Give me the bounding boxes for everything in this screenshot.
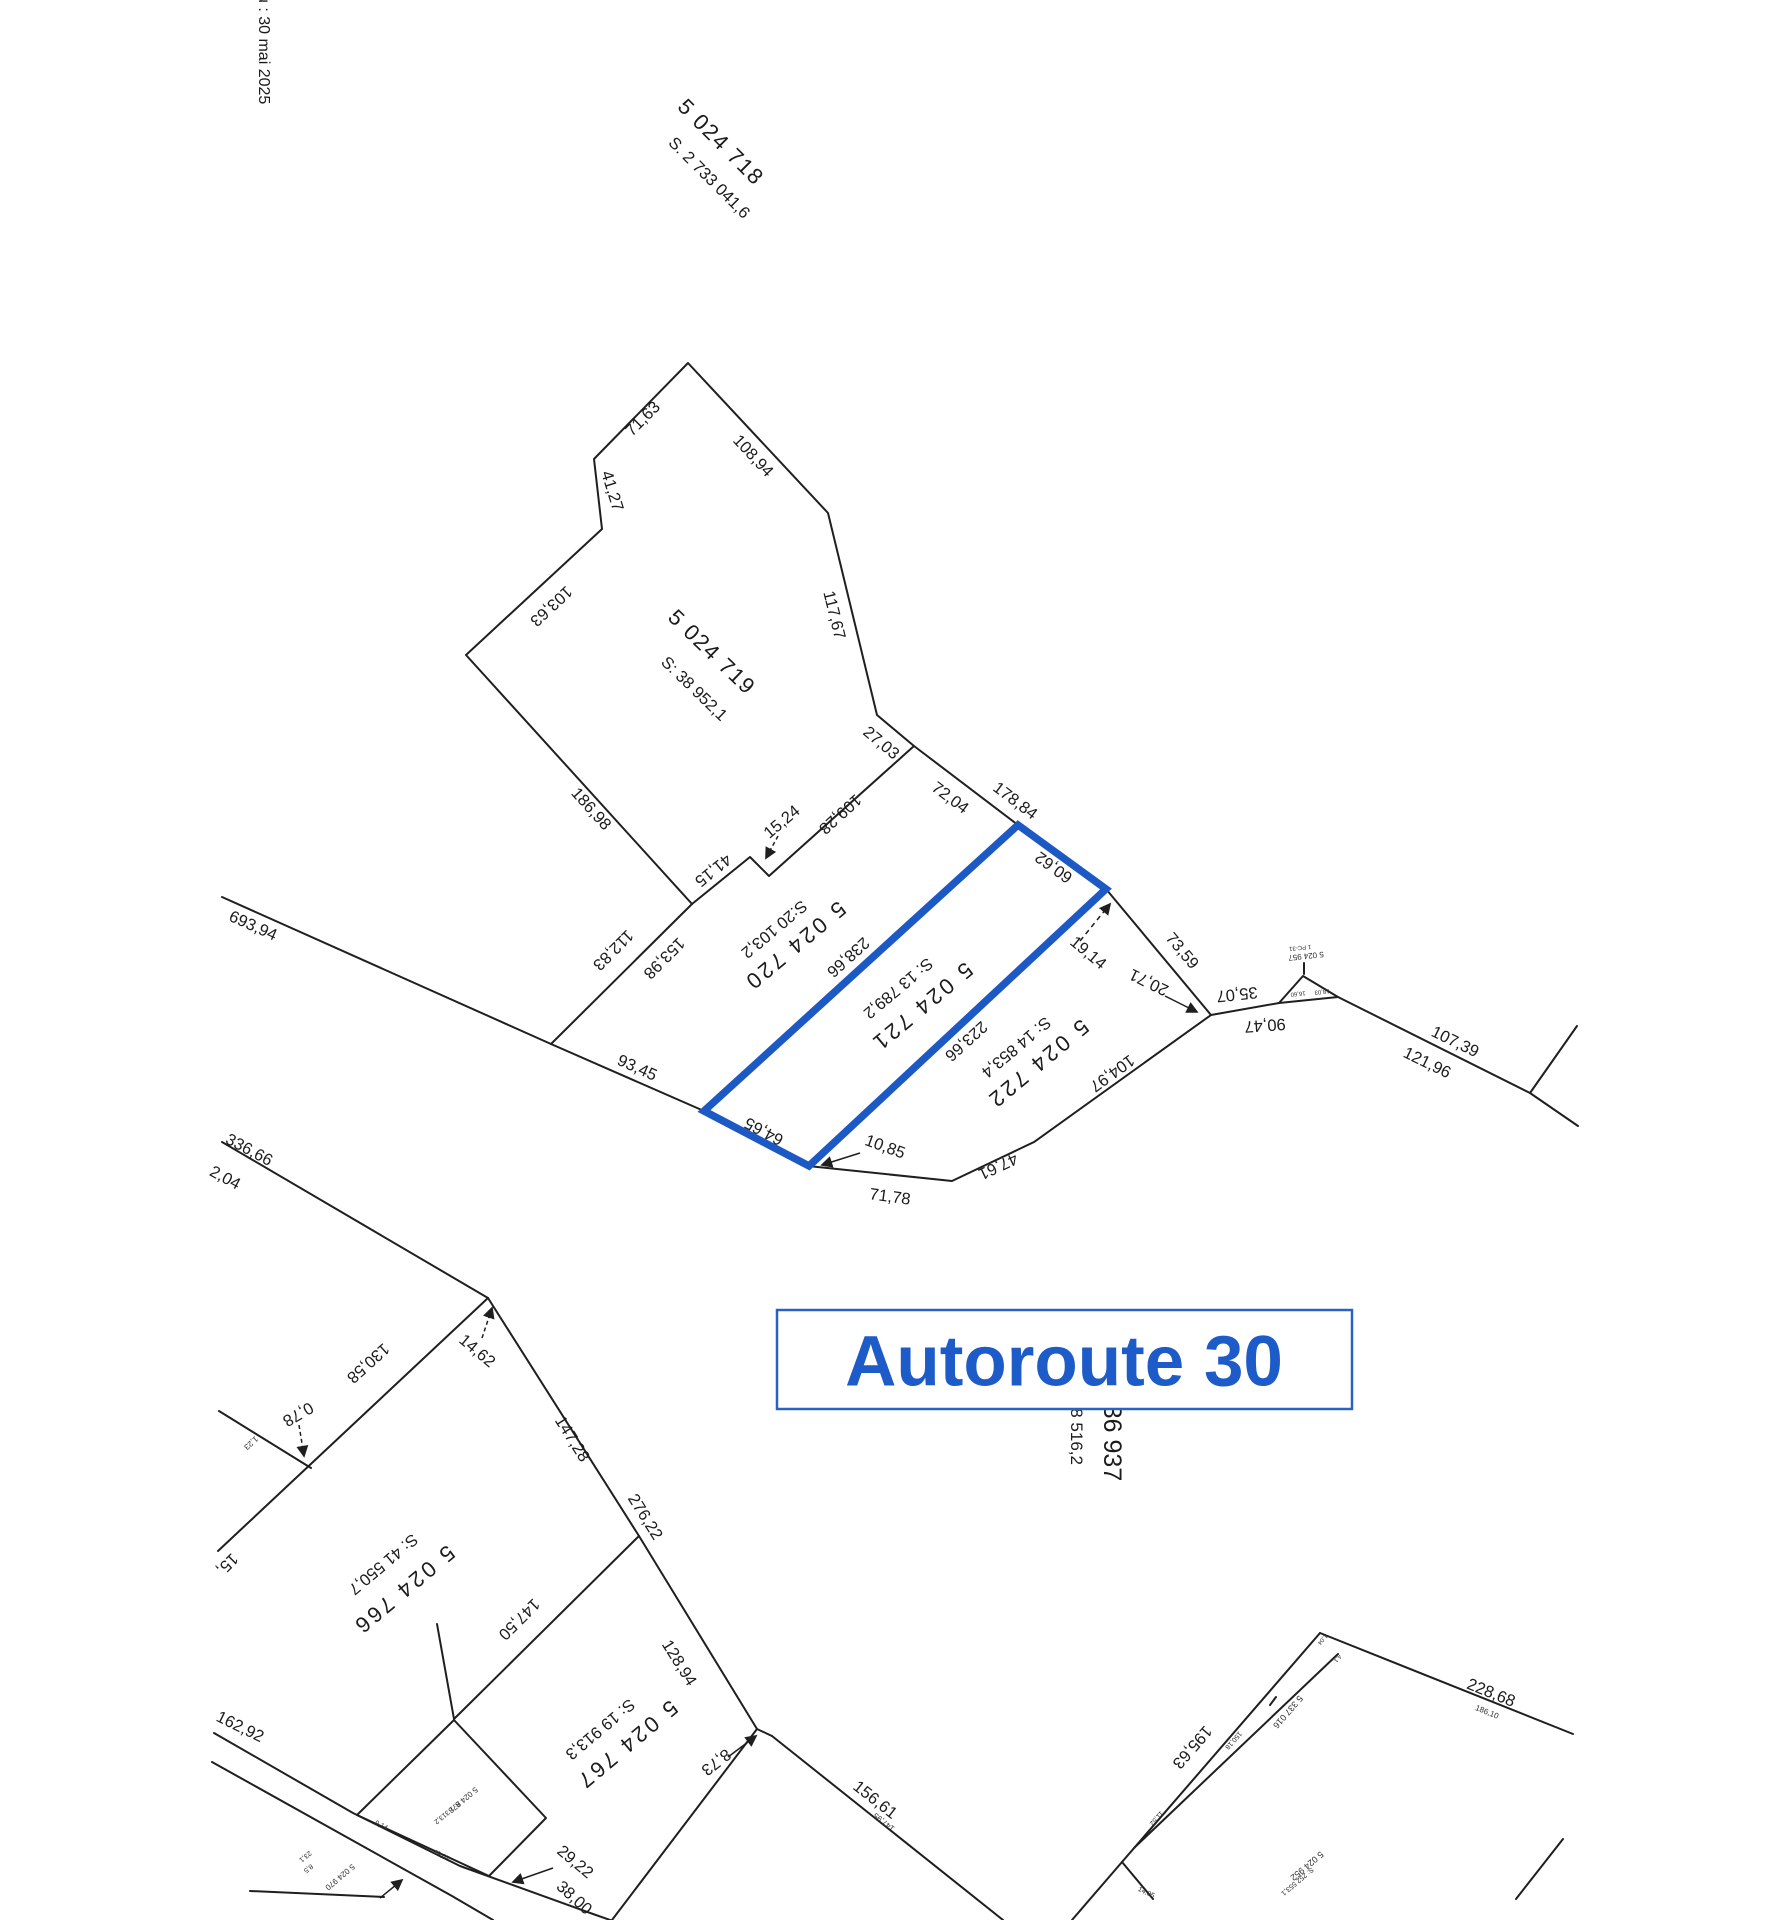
svg-text:90,47: 90,47 <box>1244 1015 1286 1036</box>
svg-text:u : 30 mai 2025: u : 30 mai 2025 <box>255 0 272 104</box>
svg-text:Autoroute 30: Autoroute 30 <box>845 1323 1283 1402</box>
